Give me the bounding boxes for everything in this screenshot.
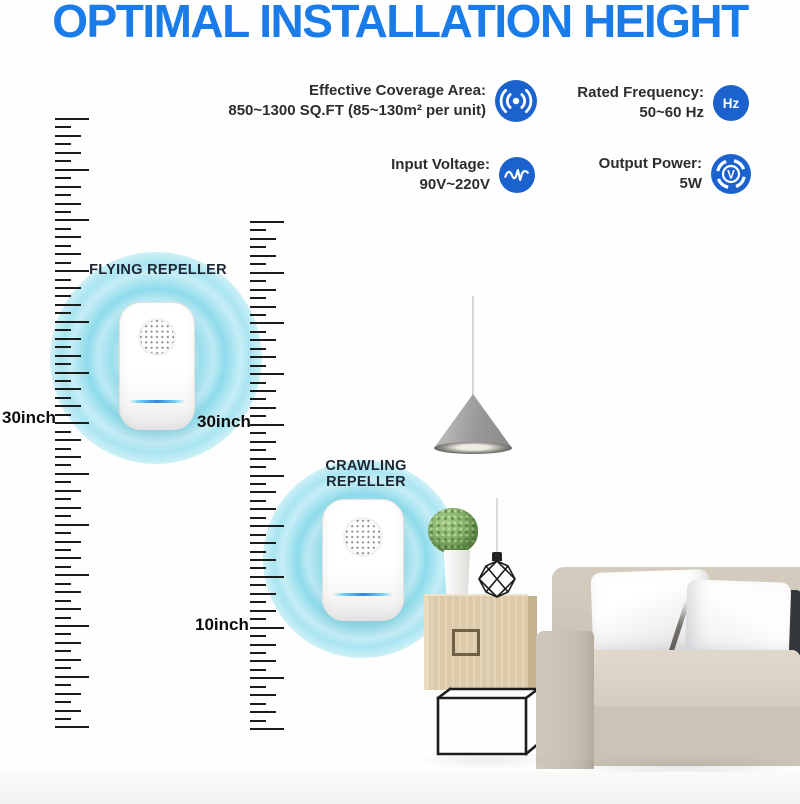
spec-power: Output Power: 5W V bbox=[560, 154, 751, 194]
ruler-tick bbox=[250, 576, 284, 578]
ruler-tick bbox=[250, 263, 266, 265]
ruler-tick bbox=[55, 710, 81, 712]
sofa-seat-cushion bbox=[580, 650, 800, 712]
ruler-tick bbox=[55, 312, 71, 314]
height-ruler-left bbox=[55, 118, 95, 735]
ruler-tick bbox=[55, 684, 71, 686]
ruler-tick bbox=[55, 566, 71, 568]
ruler-tick bbox=[250, 246, 266, 248]
height-label-10inch: 10inch bbox=[195, 615, 249, 635]
ruler-tick bbox=[250, 407, 276, 409]
cone-pendant-lamp bbox=[434, 296, 512, 456]
ruler-tick bbox=[250, 677, 284, 679]
ruler-tick bbox=[250, 601, 266, 603]
ruler-tick bbox=[55, 625, 89, 627]
spec-coverage-value: 850~1300 SQ.FT (85~130m² per unit) bbox=[228, 101, 486, 121]
ruler-tick bbox=[55, 439, 81, 441]
ruler-tick bbox=[55, 473, 89, 475]
ruler-tick bbox=[250, 584, 266, 586]
ruler-tick bbox=[250, 500, 266, 502]
ruler-tick bbox=[250, 314, 266, 316]
lamp-cord bbox=[496, 498, 498, 554]
ruler-tick bbox=[250, 551, 266, 553]
spec-voltage: Input Voltage: 90V~220V bbox=[320, 155, 535, 195]
ruler-tick bbox=[55, 557, 81, 559]
ruler-tick bbox=[55, 203, 81, 205]
ruler-tick bbox=[250, 458, 276, 460]
ruler-tick bbox=[55, 397, 71, 399]
ruler-tick bbox=[250, 306, 276, 308]
ruler-tick bbox=[55, 676, 89, 678]
ruler-tick bbox=[55, 135, 81, 137]
ruler-tick bbox=[55, 642, 81, 644]
height-label-30inch-left: 30inch bbox=[2, 408, 56, 428]
ruler-tick bbox=[250, 382, 266, 384]
ruler-tick bbox=[55, 633, 71, 635]
ruler-tick bbox=[250, 508, 276, 510]
ruler-tick bbox=[55, 515, 71, 517]
ruler-tick bbox=[55, 194, 71, 196]
ruler-tick bbox=[55, 414, 71, 416]
ruler-tick bbox=[55, 693, 81, 695]
ruler-tick bbox=[55, 126, 71, 128]
ruler-tick bbox=[250, 415, 266, 417]
ruler-tick bbox=[55, 219, 89, 221]
spec-voltage-label: Input Voltage: bbox=[391, 155, 490, 175]
led-indicator bbox=[333, 593, 394, 597]
height-label-30inch-right: 30inch bbox=[197, 412, 251, 432]
spec-voltage-value: 90V~220V bbox=[391, 175, 490, 195]
plant-pot bbox=[442, 550, 472, 596]
sofa-armrest bbox=[536, 631, 594, 769]
ruler-tick bbox=[250, 221, 284, 223]
ruler-tick bbox=[250, 424, 284, 426]
ruler-tick bbox=[250, 398, 266, 400]
ruler-tick bbox=[55, 600, 71, 602]
ruler-tick bbox=[250, 229, 266, 231]
ruler-tick bbox=[55, 718, 71, 720]
speaker-grille bbox=[138, 318, 176, 356]
ruler-tick bbox=[55, 372, 89, 374]
ruler-tick bbox=[250, 610, 276, 612]
ruler-tick bbox=[250, 635, 266, 637]
ruler-tick bbox=[55, 431, 71, 433]
ruler-tick bbox=[250, 627, 284, 629]
height-ruler-right bbox=[250, 221, 290, 736]
ruler-tick bbox=[55, 659, 81, 661]
wire-pendant-lamp bbox=[477, 498, 517, 600]
wire-lamp-cage bbox=[477, 559, 517, 599]
crawling-repeller-device bbox=[322, 499, 404, 621]
ruler-tick bbox=[55, 186, 81, 188]
ruler-tick bbox=[55, 574, 89, 576]
ruler-tick bbox=[250, 644, 276, 646]
ruler-tick bbox=[55, 236, 81, 238]
ruler-tick bbox=[250, 475, 284, 477]
lamp-shade bbox=[434, 394, 512, 448]
spec-power-value: 5W bbox=[599, 174, 702, 194]
ruler-tick bbox=[55, 346, 71, 348]
ruler-tick bbox=[250, 593, 276, 595]
ruler-tick bbox=[55, 591, 81, 593]
spec-frequency-value: 50~60 Hz bbox=[577, 103, 704, 123]
ruler-tick bbox=[250, 272, 284, 274]
ruler-tick bbox=[250, 694, 276, 696]
ruler-tick bbox=[250, 652, 266, 654]
signal-icon bbox=[495, 80, 537, 122]
lamp-rim bbox=[434, 442, 512, 454]
ruler-tick bbox=[250, 728, 284, 730]
ruler-tick bbox=[55, 152, 81, 154]
ruler-tick bbox=[55, 498, 71, 500]
ruler-tick bbox=[55, 667, 71, 669]
ruler-tick bbox=[250, 534, 266, 536]
ruler-tick bbox=[55, 549, 71, 551]
table-floor-shadow bbox=[415, 750, 555, 770]
ruler-tick bbox=[250, 449, 266, 451]
ruler-tick bbox=[250, 390, 276, 392]
hz-icon-text: Hz bbox=[723, 96, 740, 111]
hz-icon: Hz bbox=[713, 85, 749, 121]
ruler-tick bbox=[250, 483, 266, 485]
ruler-tick bbox=[250, 297, 266, 299]
ruler-tick bbox=[250, 466, 266, 468]
ruler-tick bbox=[55, 118, 89, 120]
ruler-tick bbox=[250, 339, 276, 341]
ruler-tick bbox=[250, 348, 266, 350]
ruler-tick bbox=[250, 280, 266, 282]
ruler-tick bbox=[55, 464, 71, 466]
ruler-tick bbox=[55, 617, 71, 619]
spec-frequency-label: Rated Frequency: bbox=[577, 83, 704, 103]
ruler-tick bbox=[55, 287, 81, 289]
ruler-tick bbox=[55, 701, 71, 703]
ruler-tick bbox=[55, 245, 71, 247]
ruler-tick bbox=[55, 422, 89, 424]
ruler-tick bbox=[55, 262, 71, 264]
ruler-tick bbox=[250, 660, 276, 662]
ruler-tick bbox=[55, 388, 81, 390]
ruler-tick bbox=[250, 567, 266, 569]
ruler-tick bbox=[250, 618, 266, 620]
ruler-tick bbox=[250, 441, 276, 443]
ruler-tick bbox=[250, 289, 276, 291]
ruler-tick bbox=[250, 491, 276, 493]
ruler-tick bbox=[250, 542, 276, 544]
ruler-tick bbox=[250, 331, 266, 333]
ruler-tick bbox=[55, 279, 71, 281]
ruler-tick bbox=[55, 295, 71, 297]
ruler-tick bbox=[55, 304, 81, 306]
ruler-tick bbox=[250, 255, 276, 257]
ruler-tick bbox=[55, 169, 89, 171]
ruler-tick bbox=[250, 322, 284, 324]
ruler-tick bbox=[250, 238, 276, 240]
spec-coverage-label: Effective Coverage Area: bbox=[228, 81, 486, 101]
ruler-tick bbox=[250, 517, 266, 519]
ruler-tick bbox=[250, 525, 284, 527]
ruler-tick bbox=[55, 228, 71, 230]
speaker-grille bbox=[343, 517, 383, 557]
floor bbox=[0, 772, 800, 804]
ruler-tick bbox=[55, 608, 81, 610]
side-table-handle bbox=[452, 629, 480, 656]
ruler-tick bbox=[250, 669, 266, 671]
ruler-tick bbox=[55, 363, 71, 365]
ruler-tick bbox=[55, 524, 89, 526]
ruler-tick bbox=[55, 456, 81, 458]
ruler-tick bbox=[55, 541, 81, 543]
page-title: OPTIMAL INSTALLATION HEIGHT bbox=[0, 0, 800, 48]
ruler-tick bbox=[55, 583, 71, 585]
ruler-tick bbox=[55, 355, 81, 357]
ruler-tick bbox=[250, 720, 266, 722]
ruler-tick bbox=[55, 329, 71, 331]
ruler-tick bbox=[55, 507, 81, 509]
spec-frequency: Rated Frequency: 50~60 Hz Hz bbox=[540, 83, 749, 123]
spec-coverage: Effective Coverage Area: 850~1300 SQ.FT … bbox=[170, 80, 537, 122]
ruler-tick bbox=[250, 373, 284, 375]
ruler-tick bbox=[250, 356, 276, 358]
ruler-tick bbox=[250, 711, 276, 713]
flying-repeller-device bbox=[119, 302, 195, 430]
flying-repeller-label: FLYING REPELLER bbox=[78, 262, 238, 278]
spec-power-label: Output Power: bbox=[599, 154, 702, 174]
ruler-tick bbox=[55, 177, 71, 179]
led-indicator bbox=[129, 400, 185, 404]
crawling-repeller-label: CRAWLING REPELLER bbox=[286, 458, 446, 490]
voltage-dial-icon: V bbox=[711, 154, 751, 194]
ruler-tick bbox=[55, 160, 71, 162]
wave-icon bbox=[499, 157, 535, 193]
ruler-tick bbox=[55, 650, 71, 652]
ruler-tick bbox=[55, 211, 71, 213]
ruler-tick bbox=[250, 432, 266, 434]
lamp-cord bbox=[472, 296, 474, 396]
plant-topiary-ball bbox=[428, 508, 478, 554]
installation-height-infographic: FLYING REPELLER CRAWLING REPELLER 30inch… bbox=[0, 0, 800, 804]
ruler-tick bbox=[250, 365, 266, 367]
ruler-tick bbox=[55, 338, 81, 340]
ruler-tick bbox=[55, 490, 81, 492]
ruler-tick bbox=[55, 448, 71, 450]
ruler-tick bbox=[250, 686, 266, 688]
ruler-tick bbox=[55, 726, 89, 728]
ruler-tick bbox=[55, 405, 81, 407]
v-icon-text: V bbox=[727, 169, 735, 181]
ruler-tick bbox=[55, 532, 71, 534]
ruler-tick bbox=[55, 143, 71, 145]
ruler-tick bbox=[55, 380, 71, 382]
ruler-tick bbox=[55, 481, 71, 483]
ruler-tick bbox=[250, 703, 266, 705]
ruler-tick bbox=[55, 253, 81, 255]
ruler-tick bbox=[250, 559, 276, 561]
ruler-tick bbox=[55, 321, 89, 323]
